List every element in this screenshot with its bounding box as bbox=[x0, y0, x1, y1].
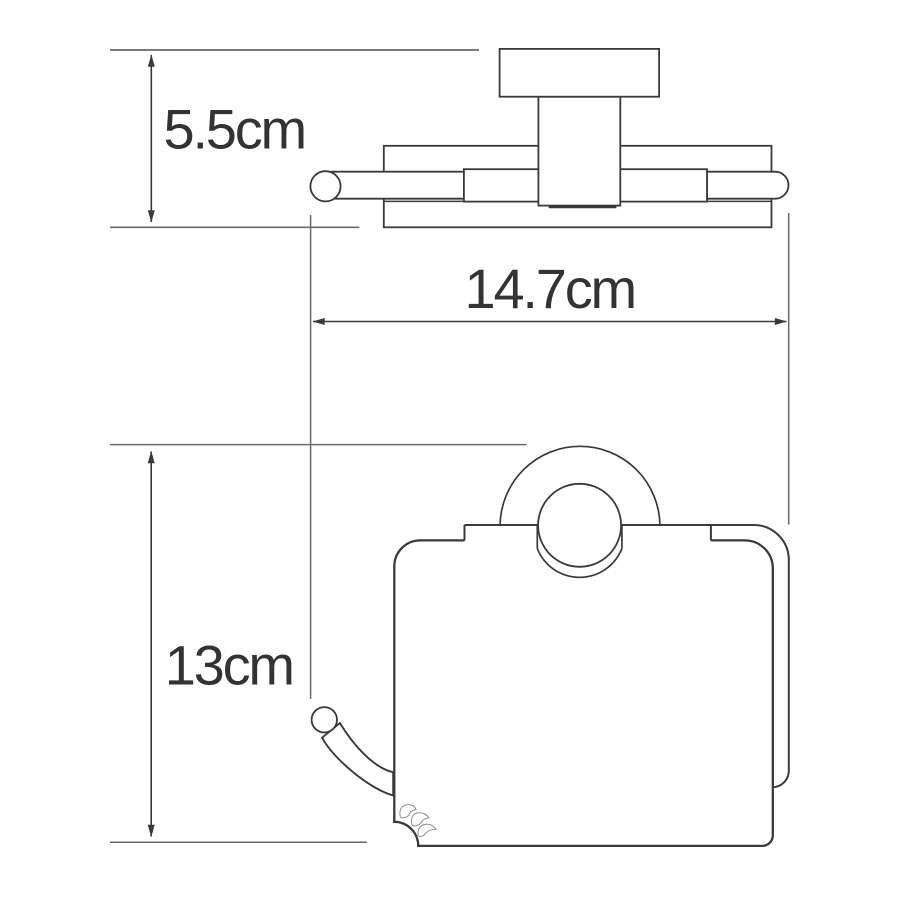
svg-text:14.7cm: 14.7cm bbox=[465, 257, 635, 320]
svg-text:5.5cm: 5.5cm bbox=[164, 98, 306, 161]
svg-text:13cm: 13cm bbox=[165, 633, 293, 696]
